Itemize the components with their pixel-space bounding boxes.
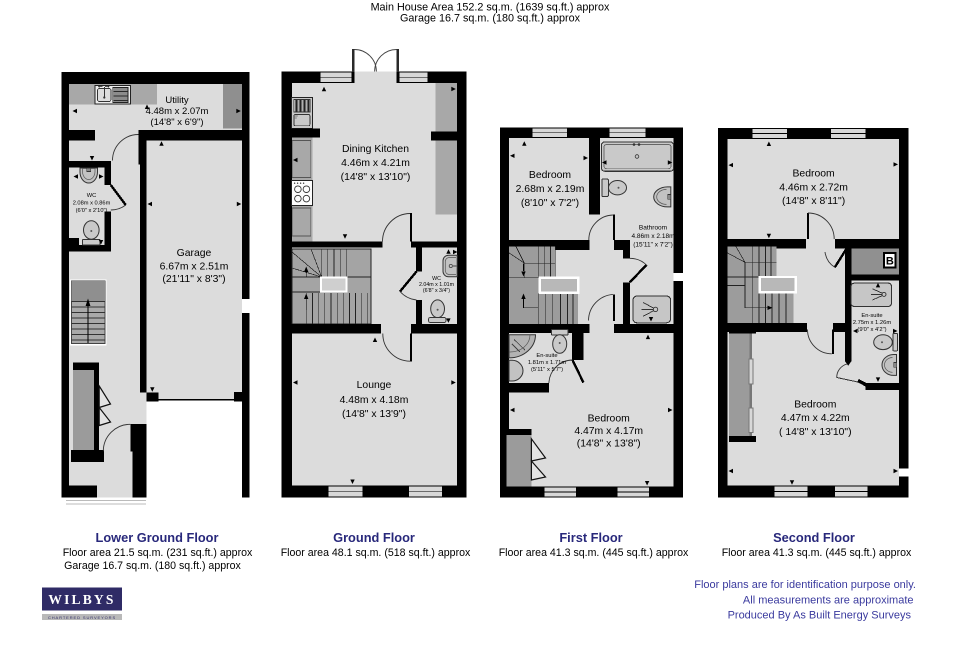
svg-text:2.75m x 1.26m: 2.75m x 1.26m [853,320,892,326]
svg-text:Bathroom: Bathroom [639,225,667,232]
svg-text:Lower Ground Floor: Lower Ground Floor [96,530,219,545]
svg-text:Dining Kitchen: Dining Kitchen [342,144,409,155]
svg-text:(14'8" x 13'9"): (14'8" x 13'9") [342,409,406,420]
svg-text:2.68m x 2.19m: 2.68m x 2.19m [516,184,585,195]
svg-text:En-suite: En-suite [536,353,557,359]
svg-text:(15'11" x 7'2"): (15'11" x 7'2") [633,242,673,249]
svg-text:(14'8" x 8'11"): (14'8" x 8'11") [782,196,845,207]
svg-text:(6'8" x 3/4"): (6'8" x 3/4") [423,288,450,294]
svg-text:Bedroom: Bedroom [529,170,571,181]
svg-text:Floor area 41.3 sq.m. (445 sq.: Floor area 41.3 sq.m. (445 sq.ft.) appro… [499,547,689,559]
svg-text:Floor area 21.5 sq.m. (231 sq.: Floor area 21.5 sq.m. (231 sq.ft.) appro… [63,547,253,559]
svg-text:(6'0" x 2'10"): (6'0" x 2'10") [76,208,108,214]
svg-text:(8'10" x 7'2"): (8'10" x 7'2") [521,198,579,209]
svg-text:4.47m x 4.17m: 4.47m x 4.17m [574,426,643,437]
svg-text:(14'8" x 13'8"): (14'8" x 13'8") [577,439,641,450]
svg-text:Bedroom: Bedroom [588,414,630,425]
svg-text:Bedroom: Bedroom [793,169,835,180]
svg-text:6.67m x 2.51m: 6.67m x 2.51m [160,262,229,273]
svg-text:CHARTERED SURVEYORS: CHARTERED SURVEYORS [48,615,116,620]
svg-text:Floor plans are for identifica: Floor plans are for identification purpo… [694,579,916,591]
svg-text:Garage: Garage [177,248,212,259]
svg-text:4.46m x 2.72m: 4.46m x 2.72m [779,183,848,194]
svg-text:2.08m x 0.86m: 2.08m x 0.86m [73,201,111,207]
svg-text:(14'8" x 13'10"): (14'8" x 13'10") [341,172,411,183]
svg-text:Garage 16.7 sq.m. (180 sq.ft.): Garage 16.7 sq.m. (180 sq.ft.) approx [64,560,241,572]
svg-text:Garage 16.7 sq.m. (180 sq.ft.): Garage 16.7 sq.m. (180 sq.ft.) approx [400,13,581,25]
svg-text:En-suite: En-suite [861,313,882,319]
svg-text:Floor area 48.1 sq.m. (518 sq.: Floor area 48.1 sq.m. (518 sq.ft.) appro… [281,547,471,559]
svg-text:Floor area 41.3 sq.m. (445 sq.: Floor area 41.3 sq.m. (445 sq.ft.) appro… [722,547,912,559]
svg-text:All measurements are approxima: All measurements are approximate [743,595,914,607]
svg-text:(5'11" x 5'7"): (5'11" x 5'7") [531,367,563,373]
svg-text:(9'0" x 4'2"): (9'0" x 4'2") [857,327,886,333]
svg-text:4.86m x 2.18m: 4.86m x 2.18m [632,233,675,240]
svg-text:First Floor: First Floor [559,530,622,545]
svg-text:4.48m x 4.18m: 4.48m x 4.18m [340,395,409,406]
svg-text:4.46m x 4.21m: 4.46m x 4.21m [341,158,410,169]
svg-text:Ground Floor: Ground Floor [333,530,415,545]
svg-text:( 14'8" x 13'10"): ( 14'8" x 13'10") [779,427,852,438]
svg-text:Second Floor: Second Floor [773,530,855,545]
svg-text:4.47m x 4.22m: 4.47m x 4.22m [781,413,850,424]
svg-text:B: B [886,256,894,268]
svg-text:WC: WC [87,193,96,199]
svg-text:4.48m x 2.07m: 4.48m x 2.07m [146,106,209,117]
svg-text:(14'8" x 6'9"): (14'8" x 6'9") [150,117,203,128]
svg-text:1.81m x 1.71m: 1.81m x 1.71m [528,360,567,366]
svg-text:Produced By As Built Energy Su: Produced By As Built Energy Surveys [728,610,912,622]
svg-text:WILBYS: WILBYS [48,592,115,607]
svg-text:Utility: Utility [165,95,188,106]
svg-text:Bedroom: Bedroom [794,400,836,411]
svg-text:(21'11" x 8'3"): (21'11" x 8'3") [162,274,225,285]
svg-text:Lounge: Lounge [357,380,392,391]
